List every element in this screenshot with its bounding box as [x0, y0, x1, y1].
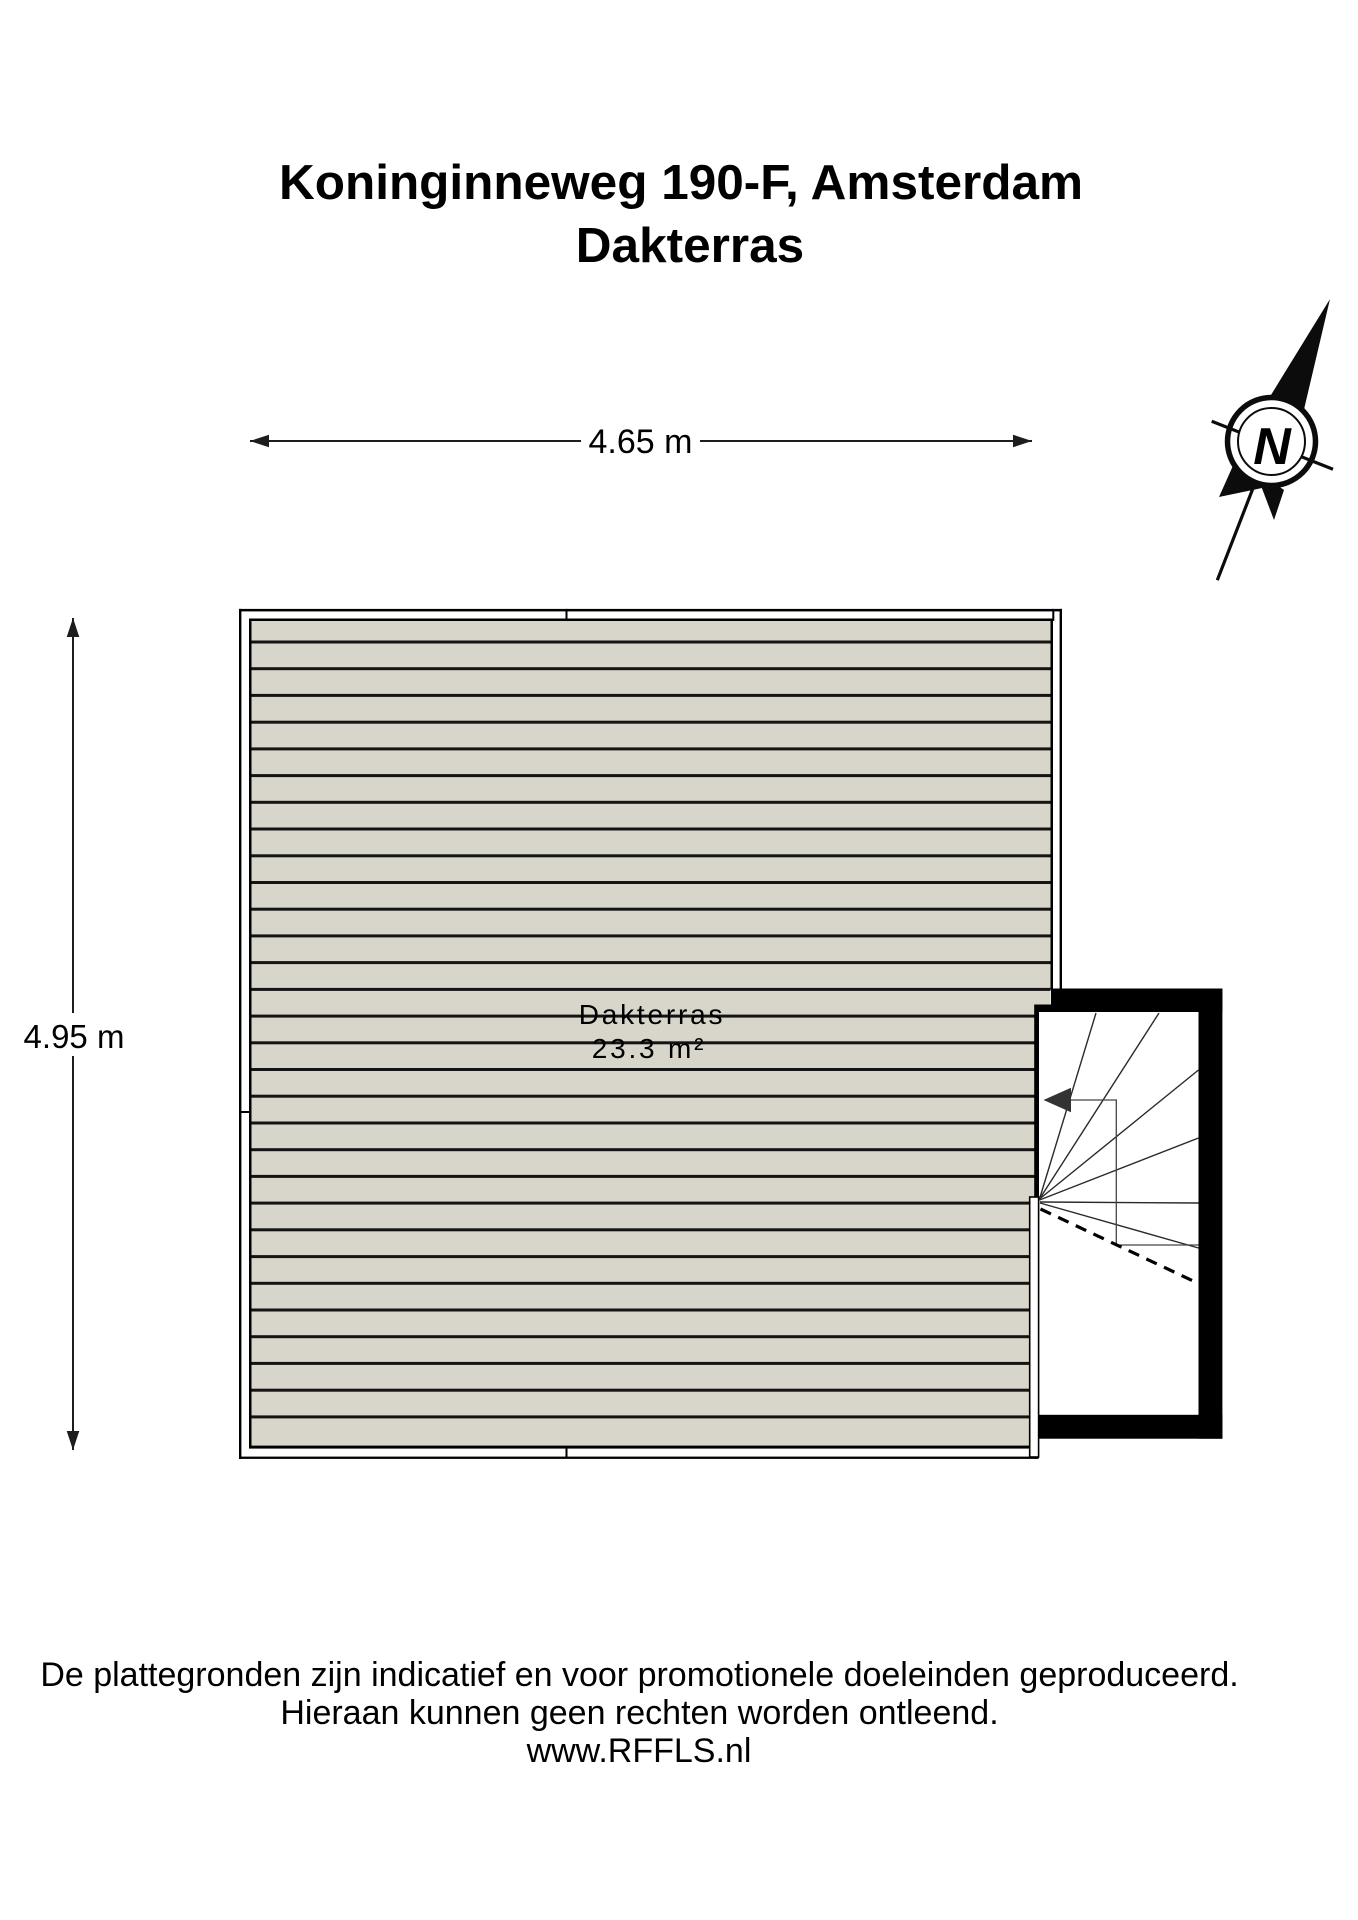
svg-text:Dakterras: Dakterras [576, 218, 804, 273]
svg-text:23.3 m²: 23.3 m² [592, 1033, 707, 1064]
svg-text:N: N [1253, 418, 1292, 476]
svg-text:4.95 m: 4.95 m [24, 1018, 125, 1055]
svg-text:Koninginneweg 190-F, Amsterdam: Koninginneweg 190-F, Amsterdam [279, 155, 1083, 210]
svg-text:Hieraan kunnen geen rechten wo: Hieraan kunnen geen rechten worden ontle… [280, 1694, 998, 1732]
svg-text:4.65 m: 4.65 m [589, 423, 693, 461]
svg-text:www.RFFLS.nl: www.RFFLS.nl [526, 1732, 752, 1770]
svg-text:Dakterras: Dakterras [579, 999, 726, 1030]
svg-text:De plattegronden zijn indicati: De plattegronden zijn indicatief en voor… [40, 1656, 1238, 1694]
